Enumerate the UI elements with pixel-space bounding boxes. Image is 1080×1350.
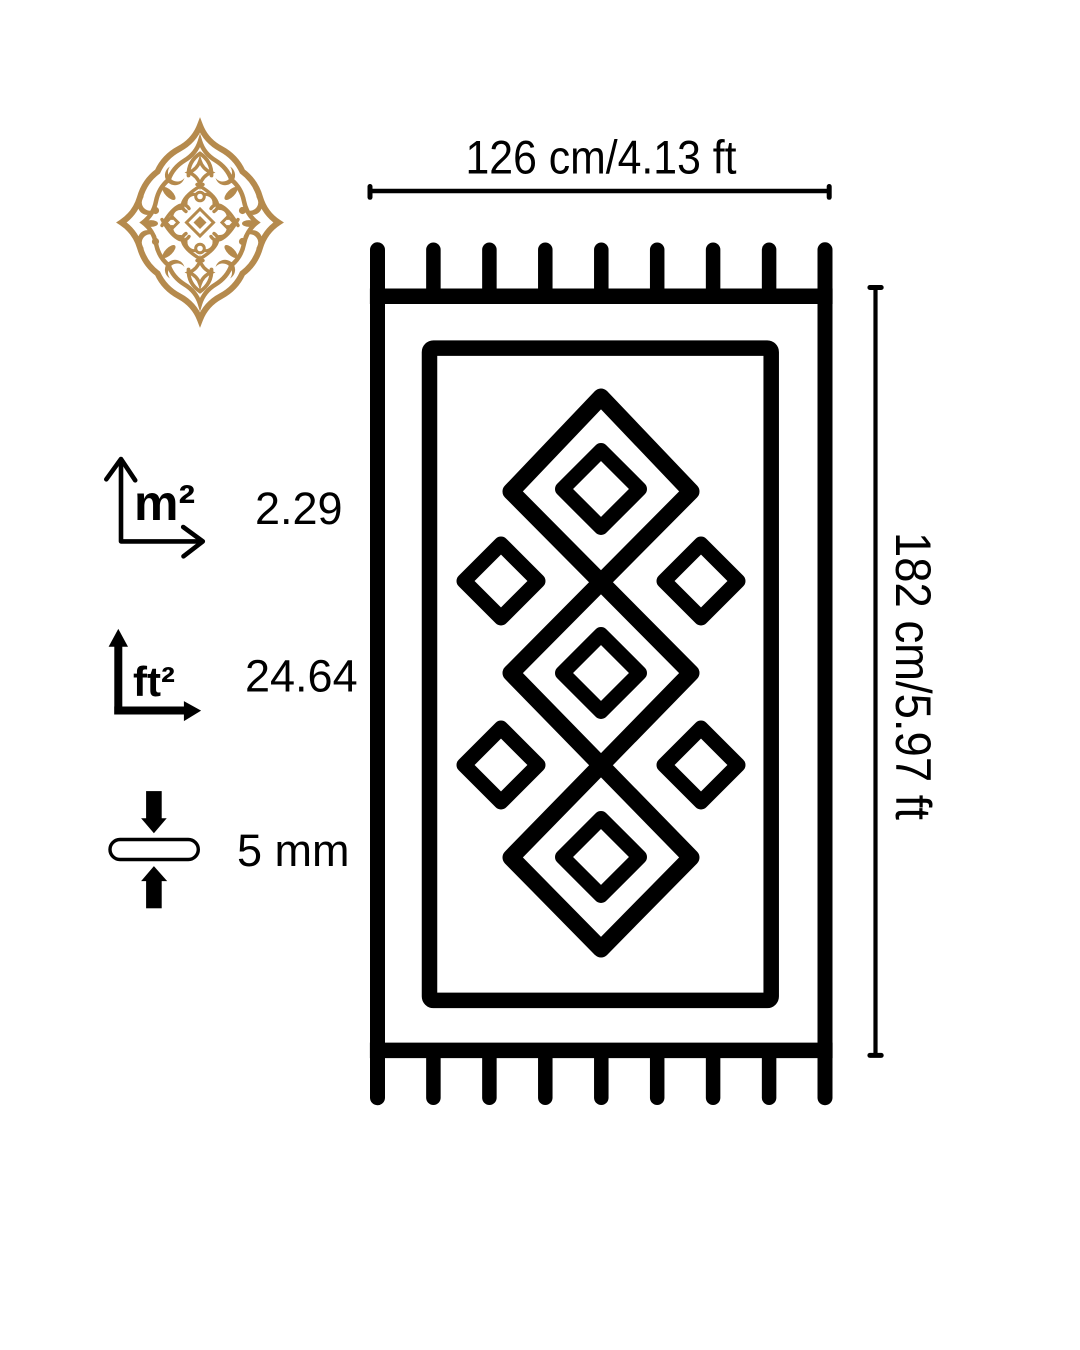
svg-text:126 cm/4.13 ft: 126 cm/4.13 ft xyxy=(466,131,737,184)
svg-text:182 cm/5.97 ft: 182 cm/5.97 ft xyxy=(885,532,941,820)
svg-text:24.64: 24.64 xyxy=(245,651,358,702)
svg-text:2.29: 2.29 xyxy=(255,483,343,534)
svg-text:5 mm: 5 mm xyxy=(237,825,350,876)
svg-text:m²: m² xyxy=(134,475,195,531)
svg-text:ft²: ft² xyxy=(133,658,175,705)
